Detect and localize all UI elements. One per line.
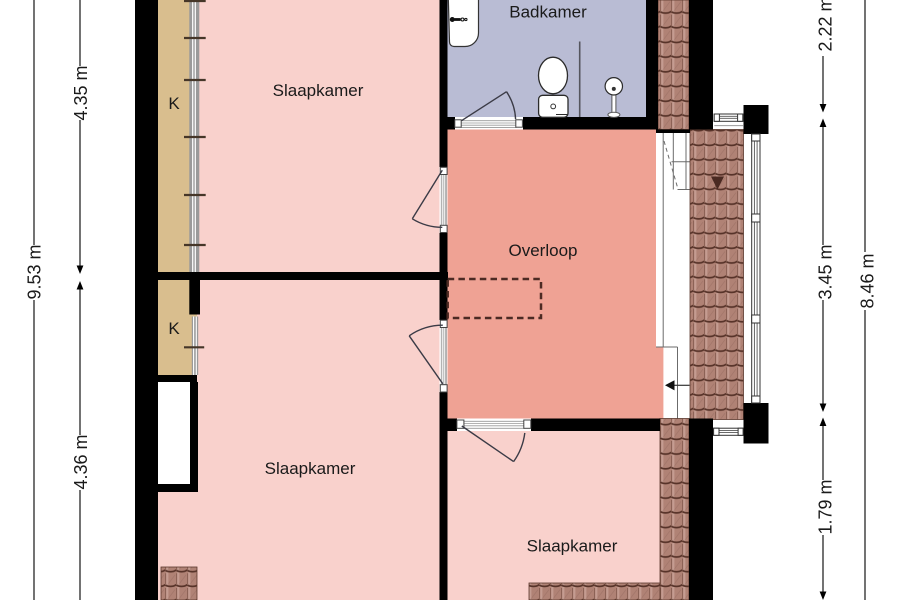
svg-text:Slaapkamer: Slaapkamer xyxy=(273,81,364,100)
svg-text:9.53 m: 9.53 m xyxy=(25,244,45,299)
svg-text:Badkamer: Badkamer xyxy=(509,3,587,22)
svg-text:3.45 m: 3.45 m xyxy=(816,244,836,299)
svg-text:8.46 m: 8.46 m xyxy=(858,253,878,308)
svg-text:1.79 m: 1.79 m xyxy=(816,479,836,534)
svg-text:Overloop: Overloop xyxy=(509,241,578,260)
svg-text:2.22 m: 2.22 m xyxy=(816,0,836,52)
svg-text:4.35 m: 4.35 m xyxy=(71,65,91,120)
svg-text:Slaapkamer: Slaapkamer xyxy=(265,459,356,478)
svg-text:K: K xyxy=(168,319,180,338)
svg-text:4.36 m: 4.36 m xyxy=(71,434,91,489)
svg-text:K: K xyxy=(168,94,180,113)
svg-text:Slaapkamer: Slaapkamer xyxy=(527,537,618,556)
